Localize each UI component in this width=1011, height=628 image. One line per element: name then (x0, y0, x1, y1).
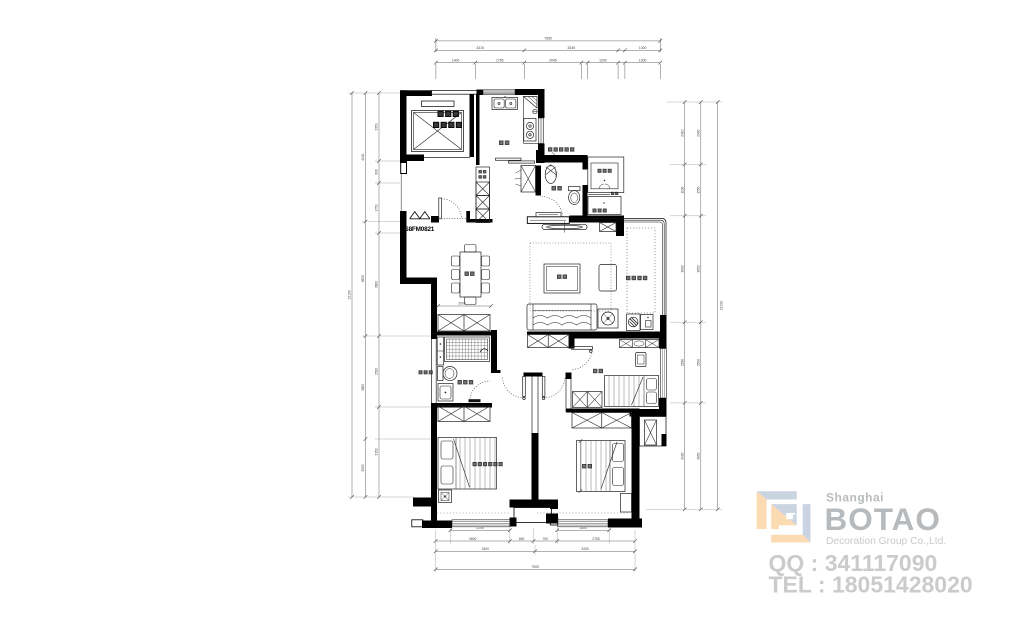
svg-text:2750: 2750 (592, 537, 600, 541)
svg-text:2600: 2600 (469, 537, 477, 541)
svg-text:TEL : 18051428020: TEL : 18051428020 (769, 571, 973, 597)
svg-text:1400: 1400 (452, 58, 460, 62)
svg-text:Decoration Group Co.,Ltd.: Decoration Group Co.,Ltd. (826, 536, 946, 547)
svg-text:1200: 1200 (599, 58, 607, 62)
svg-text:1550: 1550 (697, 186, 701, 193)
svg-text:2100: 2100 (476, 526, 484, 530)
svg-text:3315: 3315 (476, 46, 484, 50)
svg-text:2500: 2500 (375, 368, 379, 375)
svg-text:2410: 2410 (681, 129, 685, 136)
svg-text:1750: 1750 (375, 204, 379, 211)
svg-text:7950: 7950 (544, 37, 552, 41)
svg-text:S8FM0821: S8FM0821 (405, 226, 435, 233)
svg-text:2050: 2050 (361, 464, 365, 471)
svg-text:3650: 3650 (361, 275, 365, 282)
svg-text:2045: 2045 (549, 58, 557, 62)
svg-text:3345: 3345 (567, 46, 575, 50)
svg-text:4140: 4140 (361, 153, 365, 160)
svg-text:3650: 3650 (697, 265, 701, 272)
svg-text:2580: 2580 (681, 359, 685, 366)
svg-text:1765: 1765 (496, 58, 504, 62)
svg-text:3900: 3900 (681, 452, 685, 459)
svg-text:1300: 1300 (639, 46, 647, 50)
svg-text:2500: 2500 (697, 359, 701, 366)
svg-text:3400: 3400 (482, 547, 490, 551)
svg-text:BOTAO: BOTAO (825, 501, 941, 537)
svg-text:1300: 1300 (639, 58, 647, 62)
svg-text:7000: 7000 (532, 565, 540, 569)
svg-text:15100: 15100 (348, 290, 352, 299)
svg-text:3150: 3150 (375, 448, 379, 455)
svg-text:2350: 2350 (375, 123, 379, 130)
svg-text:2400: 2400 (697, 129, 701, 136)
svg-text:15100: 15100 (720, 301, 724, 310)
svg-text:700: 700 (543, 537, 549, 541)
svg-text:3600: 3600 (681, 265, 685, 272)
svg-text:1400: 1400 (579, 526, 587, 530)
svg-text:3600: 3600 (375, 281, 379, 288)
svg-text:800: 800 (519, 537, 525, 541)
svg-text:2000: 2000 (458, 301, 466, 305)
svg-text:600: 600 (554, 171, 558, 176)
svg-text:800: 800 (375, 169, 379, 175)
svg-text:3430: 3430 (581, 547, 589, 551)
svg-text:3600: 3600 (361, 384, 365, 391)
svg-text:3650: 3650 (697, 452, 701, 459)
svg-text:1100: 1100 (681, 186, 685, 193)
